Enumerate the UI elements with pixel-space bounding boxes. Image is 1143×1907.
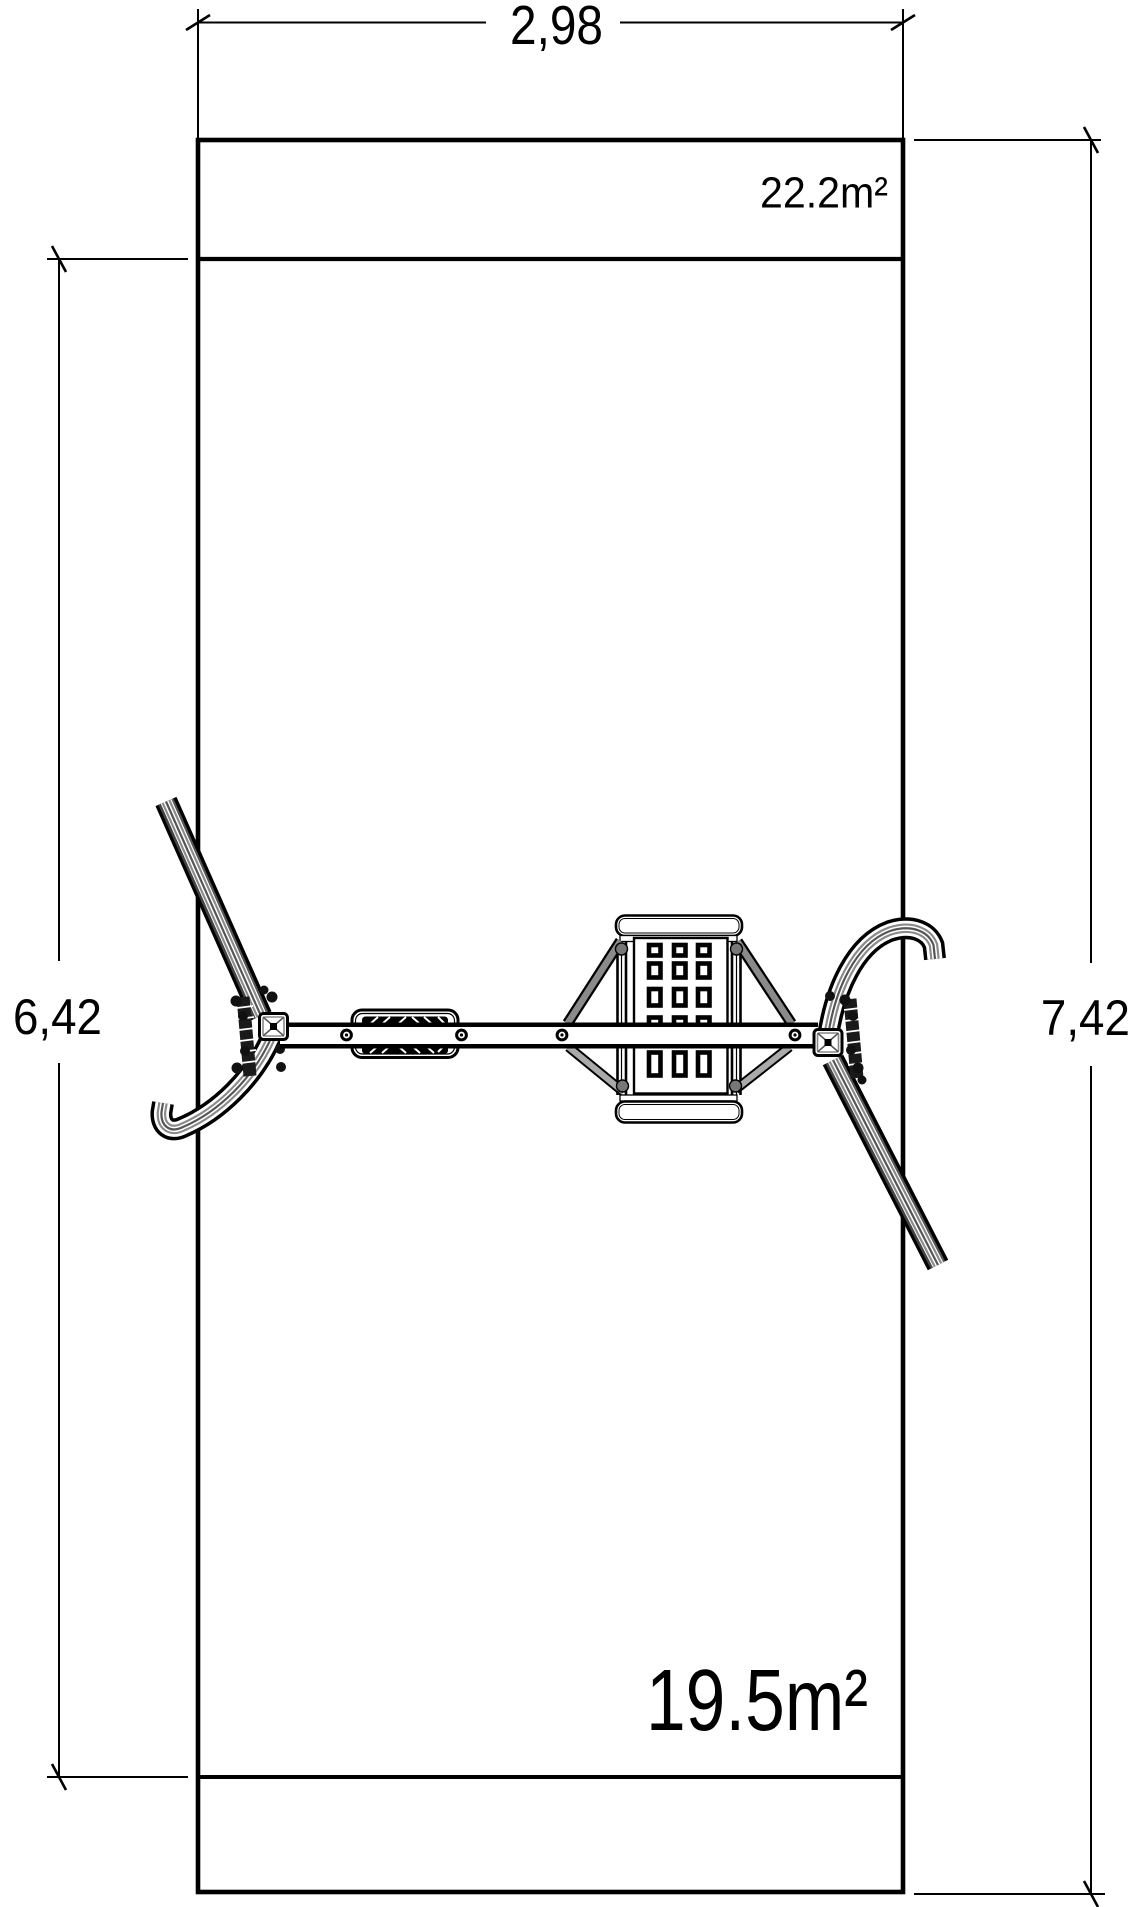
svg-text:7,42: 7,42 (1041, 989, 1130, 1046)
svg-text:2,98: 2,98 (510, 0, 603, 56)
svg-text:22.2m²: 22.2m² (760, 168, 888, 217)
svg-text:19.5m²: 19.5m² (646, 1652, 868, 1749)
svg-text:6,42: 6,42 (13, 988, 102, 1045)
